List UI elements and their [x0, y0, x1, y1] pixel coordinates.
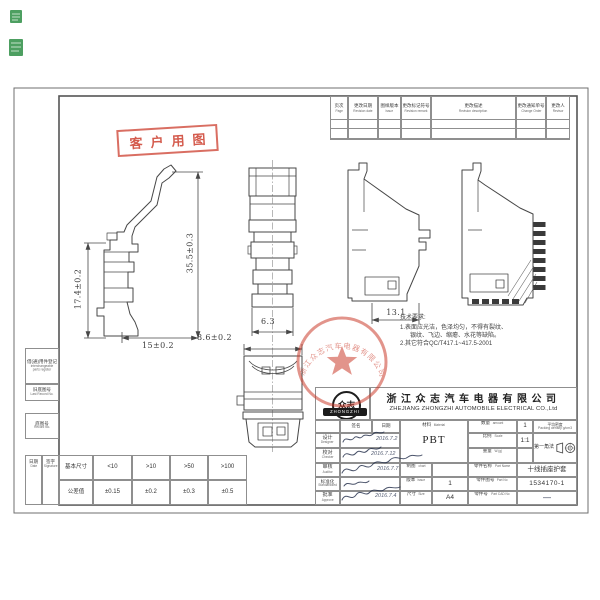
material-label-en: Material — [434, 424, 445, 427]
rev-empty-row — [547, 120, 569, 130]
weight-value-cell — [517, 448, 533, 463]
role-approve: 批准Approve — [315, 491, 340, 505]
date-header-cell: 日期 — [372, 420, 400, 433]
rev-col-label: 图样版本 — [381, 103, 399, 109]
seal-star-icon — [327, 346, 357, 375]
size-label-en: Size — [418, 493, 424, 496]
sig-date-designer: 2016.7.2 — [376, 436, 397, 442]
date-label-en: Date — [30, 465, 37, 468]
signature-area-standardized — [340, 477, 400, 491]
rev-col-issue: 图样版本Issue — [378, 96, 401, 140]
margin-block-record: 底图号 Record No. — [25, 413, 59, 439]
rev-col-label-en: Issue — [386, 109, 394, 113]
company-name-cell: 浙江众志汽车电器有限公司 ZHEJIANG ZHONGZHI AUTOMOBIL… — [370, 387, 577, 420]
weight-label: 重量 — [483, 449, 492, 454]
tech-req-line3: 2.其它符合QC/T417.1~417.5-2001 — [400, 340, 492, 348]
scale-label-en: Scale — [494, 435, 502, 438]
rev-col-label: 更改描述 — [465, 103, 483, 109]
part-no-label: 零件图号 — [476, 478, 494, 483]
issue-label-en: Issue — [418, 479, 426, 482]
chart-label-cell: 制图chart — [400, 463, 432, 477]
role-label-en: Auditor — [322, 471, 332, 474]
rev-col-label: 更改通知单号 — [518, 103, 545, 109]
sig-date-auditor: 2016.7.7 — [377, 466, 398, 472]
size-label-cell: 尺寸Size — [400, 491, 432, 505]
rev-col-revisor: 更改人Revisor — [546, 96, 570, 140]
dim-outer-width: 8.6±0.2 — [197, 333, 232, 342]
role-label-en: Standardized — [318, 485, 337, 488]
tol-header-lt10: <10 — [93, 455, 132, 480]
rev-empty-row — [379, 129, 400, 139]
view-top — [237, 356, 302, 410]
first-angle-label: 第一角法 — [534, 445, 554, 450]
part-name-label-en: Part Name — [495, 465, 510, 468]
tol-value-03: ±0.3 — [170, 480, 208, 505]
seal-arc-text: 浙江众志汽车电器有限公司 — [296, 340, 387, 378]
scale-label: 比例 — [483, 434, 492, 439]
part-name-label: 零件名称 — [474, 464, 492, 469]
role-checker: 校对Checker — [315, 448, 340, 463]
amount-label-cell: 数量amount — [468, 420, 517, 433]
tol-value-label: 公差值 — [59, 480, 93, 505]
role-auditor: 审核Auditor — [315, 463, 340, 477]
rev-empty-row — [402, 120, 430, 130]
issue-value-cell: 1 — [432, 477, 468, 491]
amount-label: 数量 — [481, 421, 490, 426]
margin-label-en: Record No. — [34, 427, 50, 430]
margin-block-interchangeable: 借(通)用件登记 interchangeable parts register — [25, 348, 59, 384]
signature-column: 签字 Signature — [42, 455, 59, 505]
rev-empty-row — [517, 129, 545, 139]
amount-label-en: amount — [493, 422, 504, 425]
weight-label-en: W.(g) — [494, 450, 502, 453]
weight-label-cell: 重量W.(g) — [468, 448, 517, 463]
cad-no-label-cell: 零件号Part CAD No — [468, 491, 517, 505]
svg-text:浙江众志汽车电器有限公司: 浙江众志汽车电器有限公司 — [296, 340, 387, 378]
tech-req-line1: 1.表面应光洁，色泽均匀，不得有裂纹、 — [400, 324, 507, 332]
tol-value-015: ±0.15 — [93, 480, 132, 505]
margin-label-en: interchangeable parts register — [28, 365, 56, 372]
rev-col-label: 页次 — [335, 103, 344, 109]
view-side-left — [97, 165, 176, 336]
dim-total-height: 35.5±0.3 — [186, 233, 195, 273]
rev-col-label: 更改标记符号 — [403, 103, 430, 109]
signature-label-en: Signature — [44, 465, 58, 468]
rev-col-label: 更改日期 — [354, 103, 372, 109]
rev-col-remark: 更改标记符号Revision remark — [401, 96, 431, 140]
green-seal-icon — [9, 10, 23, 56]
material-value: PBT — [422, 435, 445, 447]
rev-col-label-en: Revision remark — [405, 109, 428, 113]
material-label: 材料 — [422, 423, 431, 428]
role-label-en: Designer — [321, 441, 334, 444]
sig-date-checker: 2016.7.12 — [371, 451, 395, 457]
view-side-terminals — [462, 163, 537, 305]
company-logo-banner: ZHONGZHI — [323, 408, 367, 416]
margin-block-last-record: 旧底图号 Last Record No. — [25, 384, 59, 401]
material-cell: 材料Material PBT — [400, 420, 468, 463]
part-no-value-cell: 1534170-1 — [517, 477, 577, 491]
company-logo-cell: 众志 ZHONGZHI — [315, 387, 370, 420]
margin-label-en: Last Record No. — [31, 393, 54, 396]
dimension-lines — [84, 172, 419, 355]
role-designer: 设计Designer — [315, 433, 340, 448]
part-no-label-en: Part No — [497, 479, 508, 482]
projection-cell: 第一角法 — [533, 433, 577, 463]
sign-header-label: 签名 — [352, 424, 361, 429]
dim-base-width: 15±0.2 — [142, 341, 174, 350]
tol-header-gt100: >100 — [208, 455, 247, 480]
rev-empty-row — [331, 120, 347, 130]
size-value-cell: A4 — [432, 491, 468, 505]
scale-label-cell: 比例Scale — [468, 433, 517, 448]
rev-col-date: 更改日期Revision date — [348, 96, 378, 140]
date-header-label: 日期 — [382, 424, 391, 429]
sig-date-approve: 2016.7.4 — [375, 493, 396, 499]
company-name-zh: 浙江众志汽车电器有限公司 — [387, 395, 561, 406]
overlay-marks: 浙江众志汽车电器有限公司 — [0, 0, 600, 600]
cad-no-value-cell: — — [517, 491, 577, 505]
issue-label-cell: 版本Issue — [400, 477, 432, 491]
cad-no-label: 零件号 — [474, 492, 488, 497]
tol-value-02: ±0.2 — [132, 480, 170, 505]
view-front — [248, 168, 297, 307]
rev-col-label-en: Revisor — [553, 109, 564, 113]
rev-col-label-en: Change Order — [521, 109, 541, 113]
density-label-en: Packing density g/cm3 — [538, 427, 572, 431]
scale-value-cell: 1:1 — [517, 433, 533, 448]
customer-use-stamp: 客户用图 — [116, 124, 218, 157]
rev-col-change-order: 更改通知单号Change Order — [516, 96, 546, 140]
blank-cell — [315, 420, 340, 433]
chart-value-cell — [432, 463, 468, 477]
sign-header-cell: 签名 — [340, 420, 372, 433]
role-standardized: 标准化Standardized — [315, 477, 340, 491]
rev-col-label-en: Revision date — [353, 109, 372, 113]
rev-col-label-en: Page — [335, 109, 342, 113]
rev-empty-row — [331, 129, 347, 139]
rev-col-label: 更改人 — [551, 103, 565, 109]
terminal-comb — [472, 222, 546, 304]
rev-empty-row — [349, 129, 377, 139]
dim-inner-width: 6.3 — [261, 317, 275, 326]
chart-label-en: chart — [418, 465, 425, 468]
view-bottom — [243, 412, 303, 447]
role-label-en: Approve — [322, 499, 334, 502]
part-no-label-cell: 零件图号Part No — [468, 477, 517, 491]
part-name-label-cell: 零件名称Part Name — [468, 463, 517, 477]
engineering-drawing-sheet: 页次Page 更改日期Revision date 图样版本Issue 更改标记符… — [0, 0, 600, 600]
date-column: 日期 Date — [25, 455, 42, 505]
tol-header-gt50: >50 — [170, 455, 208, 480]
rev-col-page: 页次Page — [330, 96, 348, 140]
first-angle-projection-icon — [556, 439, 576, 457]
rev-empty-row — [402, 129, 430, 139]
rev-empty-row — [517, 120, 545, 130]
dim-sub-height: 17.4±0.2 — [74, 269, 83, 309]
rev-empty-row — [349, 120, 377, 130]
rev-empty-row — [432, 120, 515, 130]
part-name-value-cell: 十线插座护套 — [517, 463, 577, 477]
rev-empty-row — [432, 129, 515, 139]
role-label-en: Checker — [322, 456, 334, 459]
issue-label: 版本 — [406, 478, 415, 483]
tech-req-title: 技术要求: — [400, 314, 426, 322]
company-name-en: ZHEJIANG ZHONGZHI AUTOMOBILE ELECTRICAL … — [390, 406, 558, 412]
drawing-linework — [0, 0, 600, 600]
amount-value-cell: 1 — [517, 420, 533, 433]
rev-empty-row — [379, 120, 400, 130]
view-side-right — [348, 163, 430, 301]
rev-col-label-en: Revision description — [459, 109, 487, 113]
tech-req-line2: 银纹、飞边、缩瘪、水花等缺陷。 — [410, 332, 500, 340]
rev-empty-row — [547, 129, 569, 139]
tol-header-basic-size: 基本尺寸 — [59, 455, 93, 480]
density-cell: 平均密度 Packing density g/cm3 — [533, 420, 577, 433]
chart-label: 制图 — [407, 464, 416, 469]
size-label: 尺寸 — [407, 492, 416, 497]
cad-no-label-en: Part CAD No — [491, 493, 509, 496]
tol-header-gt10: >10 — [132, 455, 170, 480]
rev-col-description: 更改描述Revision description — [431, 96, 516, 140]
tol-value-05: ±0.5 — [208, 480, 247, 505]
